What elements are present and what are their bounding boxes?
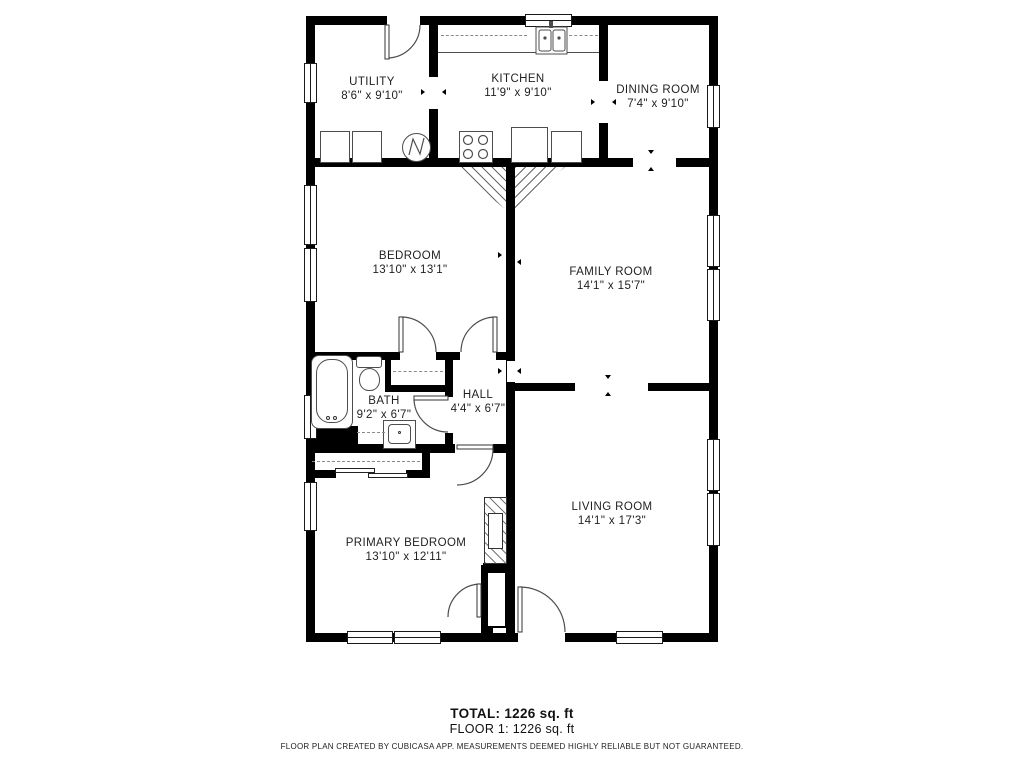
door-leaf-bath bbox=[414, 396, 448, 400]
door-arc-bath bbox=[414, 400, 448, 432]
door-arc-bedroom-1 bbox=[401, 317, 436, 352]
floor-area-text: FLOOR 1: 1226 sq. ft bbox=[0, 722, 1024, 736]
room-dims: 8'6" x 9'10" bbox=[341, 89, 402, 103]
room-dims: 14'1" x 15'7" bbox=[569, 279, 652, 293]
door-arc-bedroom-2 bbox=[461, 317, 496, 352]
room-name: FAMILY ROOM bbox=[569, 265, 652, 279]
room-label-primary-bedroom: PRIMARY BEDROOM 13'10" x 12'11" bbox=[346, 536, 467, 564]
room-dims: 13'10" x 13'1" bbox=[372, 263, 447, 277]
room-name: LIVING ROOM bbox=[571, 500, 652, 514]
sink-faucet bbox=[549, 21, 553, 28]
door-leaf-primary-interior bbox=[477, 584, 481, 617]
room-dims: 11'9" x 9'10" bbox=[484, 86, 551, 100]
room-dims: 4'4" x 6'7" bbox=[451, 402, 506, 416]
door-leaf-hall-primary bbox=[457, 445, 493, 449]
room-dims: 14'1" x 17'3" bbox=[571, 514, 652, 528]
floor-plan-page: UTILITY 8'6" x 9'10" KITCHEN 11'9" x 9'1… bbox=[0, 0, 1024, 768]
door-arc-front bbox=[520, 587, 565, 632]
door-arc-primary-interior bbox=[448, 584, 481, 617]
room-label-bedroom: BEDROOM 13'10" x 13'1" bbox=[372, 249, 447, 277]
total-area-text: TOTAL: 1226 sq. ft bbox=[0, 706, 1024, 721]
room-name: HALL bbox=[451, 388, 506, 402]
room-label-living: LIVING ROOM 14'1" x 17'3" bbox=[571, 500, 652, 528]
disclaimer-text: FLOOR PLAN CREATED BY CUBICASA APP. MEAS… bbox=[0, 742, 1024, 751]
room-label-bath: BATH 9'2" x 6'7" bbox=[357, 394, 412, 422]
room-name: DINING ROOM bbox=[616, 83, 700, 97]
door-leaf-front bbox=[518, 587, 522, 632]
door-leaf-bedroom-2 bbox=[493, 317, 497, 352]
room-dims: 7'4" x 9'10" bbox=[616, 97, 700, 111]
room-label-dining: DINING ROOM 7'4" x 9'10" bbox=[616, 83, 700, 111]
room-dims: 9'2" x 6'7" bbox=[357, 408, 412, 422]
room-dims: 13'10" x 12'11" bbox=[346, 550, 467, 564]
door-arc-hall-primary bbox=[457, 449, 493, 485]
room-label-kitchen: KITCHEN 11'9" x 9'10" bbox=[484, 72, 551, 100]
water-heater-coil bbox=[409, 138, 424, 155]
room-name: BEDROOM bbox=[372, 249, 447, 263]
room-label-family: FAMILY ROOM 14'1" x 15'7" bbox=[569, 265, 652, 293]
door-swing-overlay bbox=[0, 0, 1024, 768]
door-leaf-bedroom-1 bbox=[399, 317, 403, 352]
room-name: KITCHEN bbox=[484, 72, 551, 86]
room-label-utility: UTILITY 8'6" x 9'10" bbox=[341, 75, 402, 103]
kitchen-sink bbox=[536, 21, 567, 54]
stove-burners bbox=[464, 136, 488, 159]
room-name: UTILITY bbox=[341, 75, 402, 89]
room-name: PRIMARY BEDROOM bbox=[346, 536, 467, 550]
room-name: BATH bbox=[357, 394, 412, 408]
door-leaf-utility bbox=[385, 25, 389, 59]
room-label-hall: HALL 4'4" x 6'7" bbox=[451, 388, 506, 416]
door-arc-utility-entry bbox=[387, 25, 420, 58]
